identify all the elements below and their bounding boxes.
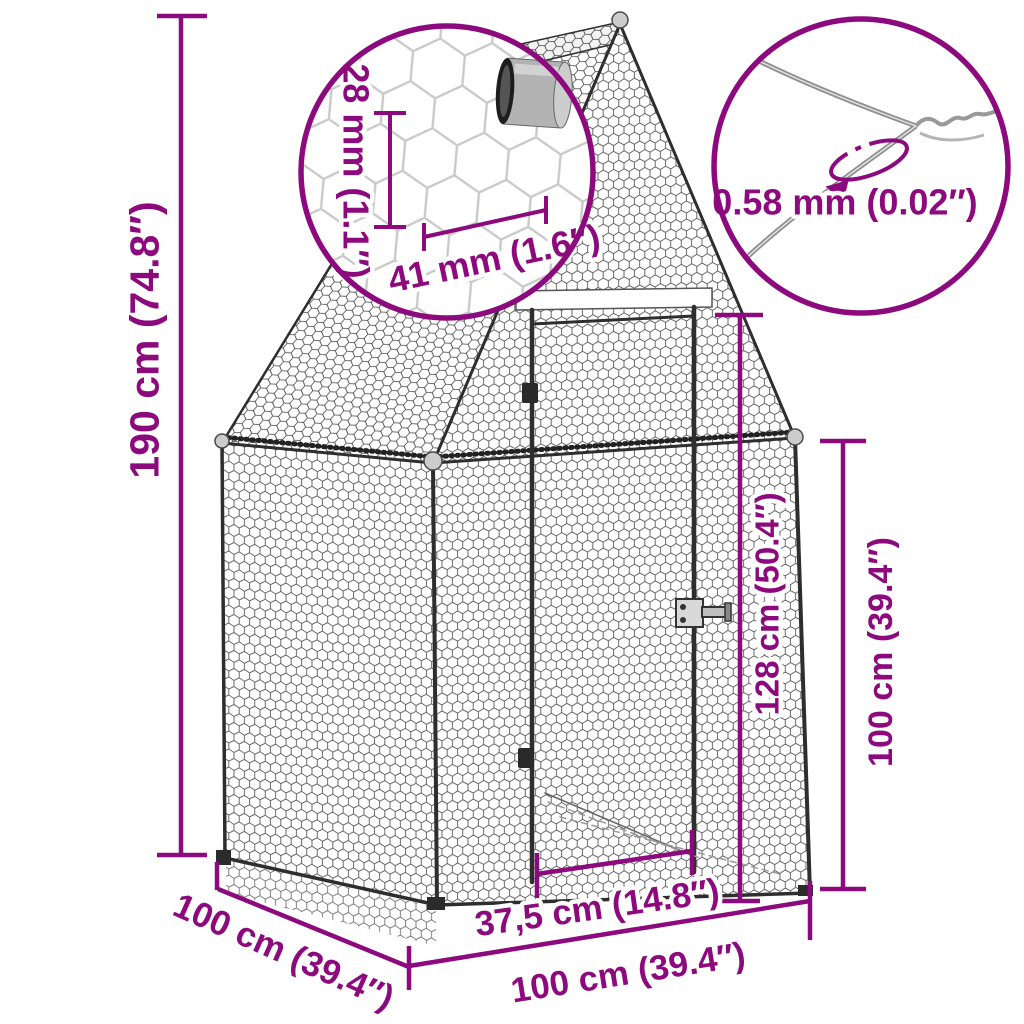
- front-right-connector-ball: [787, 429, 803, 445]
- side-wall-height-label: 100 cm (39.4″): [862, 537, 900, 767]
- wire-diameter-label: 0.58 mm (0.02″): [712, 182, 977, 223]
- dimension-total-height: 190 cm (74.8″): [121, 16, 207, 855]
- front-left-connector-ball: [424, 452, 442, 470]
- mesh-hole-height-label: 28 mm (1.1″): [335, 63, 376, 278]
- dimension-side-wall-height: 100 cm (39.4″): [820, 441, 900, 889]
- door-hinge-bottom: [518, 748, 534, 768]
- door-hinge-top: [522, 383, 538, 403]
- apex-connector-ball: [612, 12, 628, 28]
- door-height-label: 128 cm (50.4″): [749, 492, 786, 715]
- wire-callout: 0.58 mm (0.02″): [712, 19, 1008, 313]
- diagram-canvas: 28 mm (1.1″) 41 mm (1.6″): [0, 0, 1024, 1024]
- total-height-label: 190 cm (74.8″): [121, 201, 167, 478]
- left-wall: [222, 443, 437, 946]
- product-dimension-diagram: 28 mm (1.1″) 41 mm (1.6″): [0, 0, 1024, 1024]
- door-header-bar: [516, 288, 712, 310]
- ridge-tube: [494, 57, 574, 128]
- foot-front-left: [427, 897, 445, 910]
- back-left-connector-ball: [215, 434, 229, 448]
